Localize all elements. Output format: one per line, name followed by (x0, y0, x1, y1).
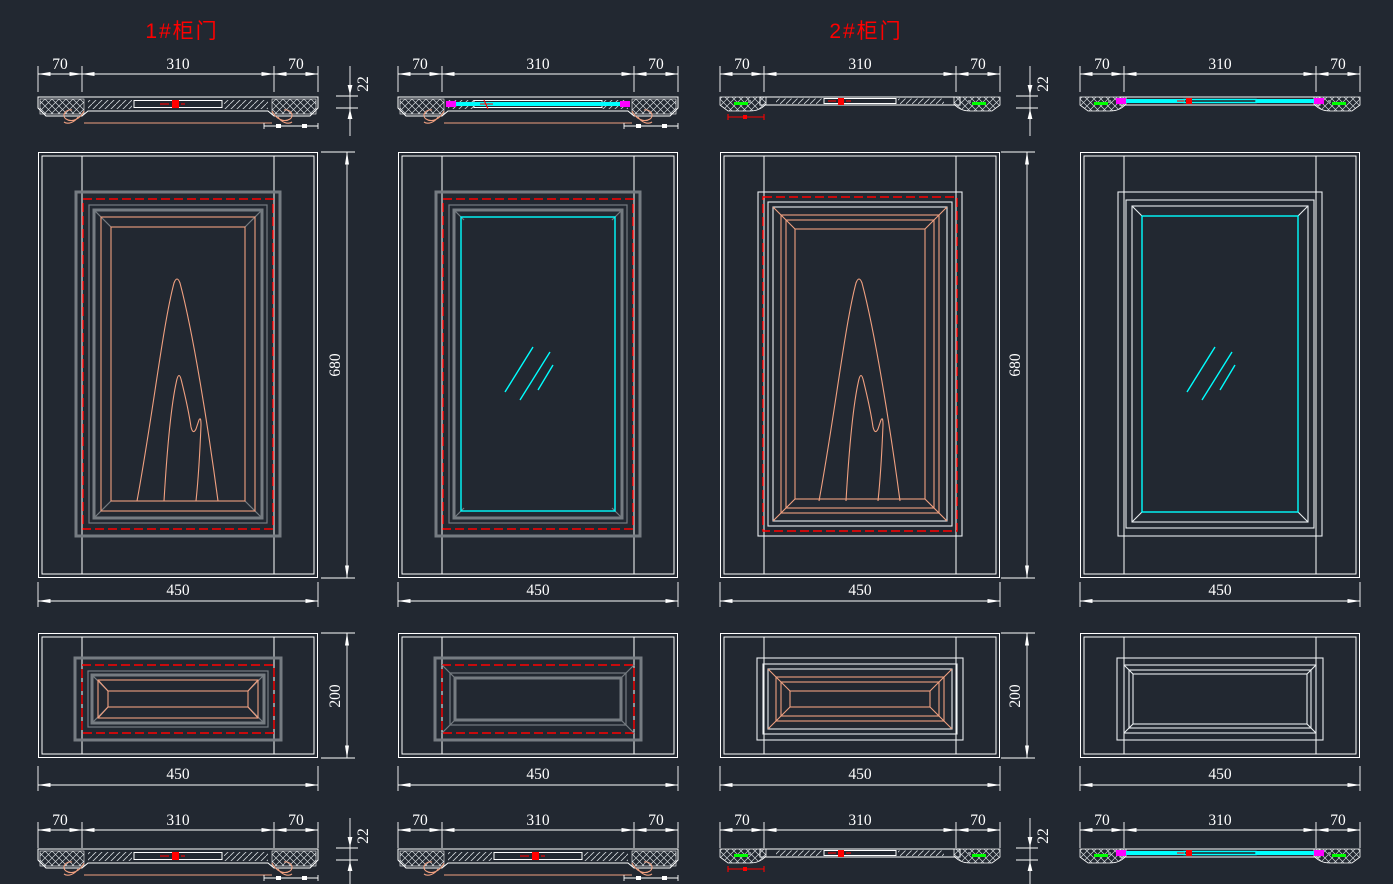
dim-label[interactable]: 22 (1035, 76, 1052, 92)
bottom-section-view[interactable] (720, 849, 1000, 872)
dim-label[interactable]: 22 (355, 828, 372, 844)
door-panel-glass[interactable] (436, 192, 640, 536)
dim-label[interactable]: 70 (1330, 812, 1346, 829)
top-section-view[interactable] (720, 97, 1000, 120)
dim-label[interactable]: 450 (1208, 582, 1232, 599)
dim-label[interactable]: 450 (848, 766, 872, 783)
top-section-view[interactable] (38, 97, 318, 129)
cad-canvas[interactable]: 1#柜门 2#柜门 70 310 70 450 450 70 310 70 70… (0, 0, 1393, 884)
dim-label[interactable]: 70 (648, 812, 664, 829)
dim-label[interactable]: 310 (526, 56, 550, 73)
door1-glass-column[interactable]: 70 310 70 450 450 70 310 70 (398, 56, 678, 881)
dim-label[interactable]: 200 (1007, 684, 1024, 708)
top-section-view[interactable] (398, 97, 678, 129)
dim-label[interactable]: 70 (412, 812, 428, 829)
dim-label[interactable]: 70 (288, 812, 304, 829)
door2-glass-column[interactable]: 70 310 70 450 450 70 310 70 (1080, 56, 1360, 863)
door-panel[interactable] (76, 192, 280, 536)
bottom-section-view[interactable] (1080, 849, 1360, 863)
dim-label[interactable]: 70 (1094, 812, 1110, 829)
dim-label[interactable]: 310 (526, 812, 550, 829)
drawer-panel[interactable] (757, 658, 963, 740)
title-door1[interactable]: 1#柜门 (145, 20, 218, 43)
bottom-section-view[interactable] (398, 849, 678, 881)
dim-label[interactable]: 200 (327, 684, 344, 708)
dim-label[interactable]: 450 (848, 582, 872, 599)
door-panel[interactable] (758, 192, 962, 536)
drawer-elevation[interactable] (1081, 634, 1360, 758)
dim-thickness[interactable] (1016, 818, 1045, 884)
drawer-panel[interactable] (75, 658, 281, 740)
dim-label[interactable]: 310 (166, 812, 190, 829)
dim-label[interactable]: 310 (848, 812, 872, 829)
dim-label[interactable]: 22 (1035, 828, 1052, 844)
drawer-panel[interactable] (435, 658, 641, 740)
door-elevation[interactable] (399, 153, 678, 578)
dim-label[interactable]: 70 (288, 56, 304, 73)
door2-solid-column[interactable]: 70 310 70 450 450 70 310 70 (720, 56, 1000, 872)
door-elevation[interactable] (39, 153, 318, 578)
door-panel-glass[interactable] (1118, 192, 1322, 536)
title-door2[interactable]: 2#柜门 (829, 20, 902, 43)
dim-label[interactable]: 70 (1330, 56, 1346, 73)
dim-label[interactable]: 310 (1208, 56, 1232, 73)
dim-label[interactable]: 70 (52, 812, 68, 829)
drawer-panel[interactable] (1117, 658, 1323, 740)
vertical-dimensions[interactable]: 680 680 200 200 22 22 22 22 (321, 66, 1052, 884)
dim-label[interactable]: 70 (734, 812, 750, 829)
dim-label[interactable]: 450 (526, 766, 550, 783)
dim-label[interactable]: 450 (166, 766, 190, 783)
top-section-view[interactable] (1080, 97, 1360, 111)
dim-label[interactable]: 310 (848, 56, 872, 73)
drawer-elevation[interactable] (721, 634, 1000, 758)
dim-label[interactable]: 450 (1208, 766, 1232, 783)
dim-label[interactable]: 22 (355, 76, 372, 92)
dim-label[interactable]: 450 (166, 582, 190, 599)
dim-label[interactable]: 70 (1094, 56, 1110, 73)
dim-label[interactable]: 680 (1007, 353, 1024, 377)
dim-label[interactable]: 680 (327, 353, 344, 377)
dim-label[interactable]: 70 (734, 56, 750, 73)
dim-label[interactable]: 70 (648, 56, 664, 73)
dim-label[interactable]: 70 (412, 56, 428, 73)
dim-label[interactable]: 310 (1208, 812, 1232, 829)
dim-label[interactable]: 70 (970, 812, 986, 829)
dim-label[interactable]: 450 (526, 582, 550, 599)
cad-viewport[interactable]: 1#柜门 2#柜门 70 310 70 450 450 70 310 70 70… (0, 0, 1393, 884)
bottom-section-view[interactable] (38, 849, 318, 881)
dim-label[interactable]: 70 (52, 56, 68, 73)
dim-label[interactable]: 70 (970, 56, 986, 73)
dim-thickness[interactable] (336, 818, 365, 884)
door1-solid-column[interactable]: 70 310 70 450 450 70 310 70 (38, 56, 318, 881)
dim-label[interactable]: 310 (166, 56, 190, 73)
